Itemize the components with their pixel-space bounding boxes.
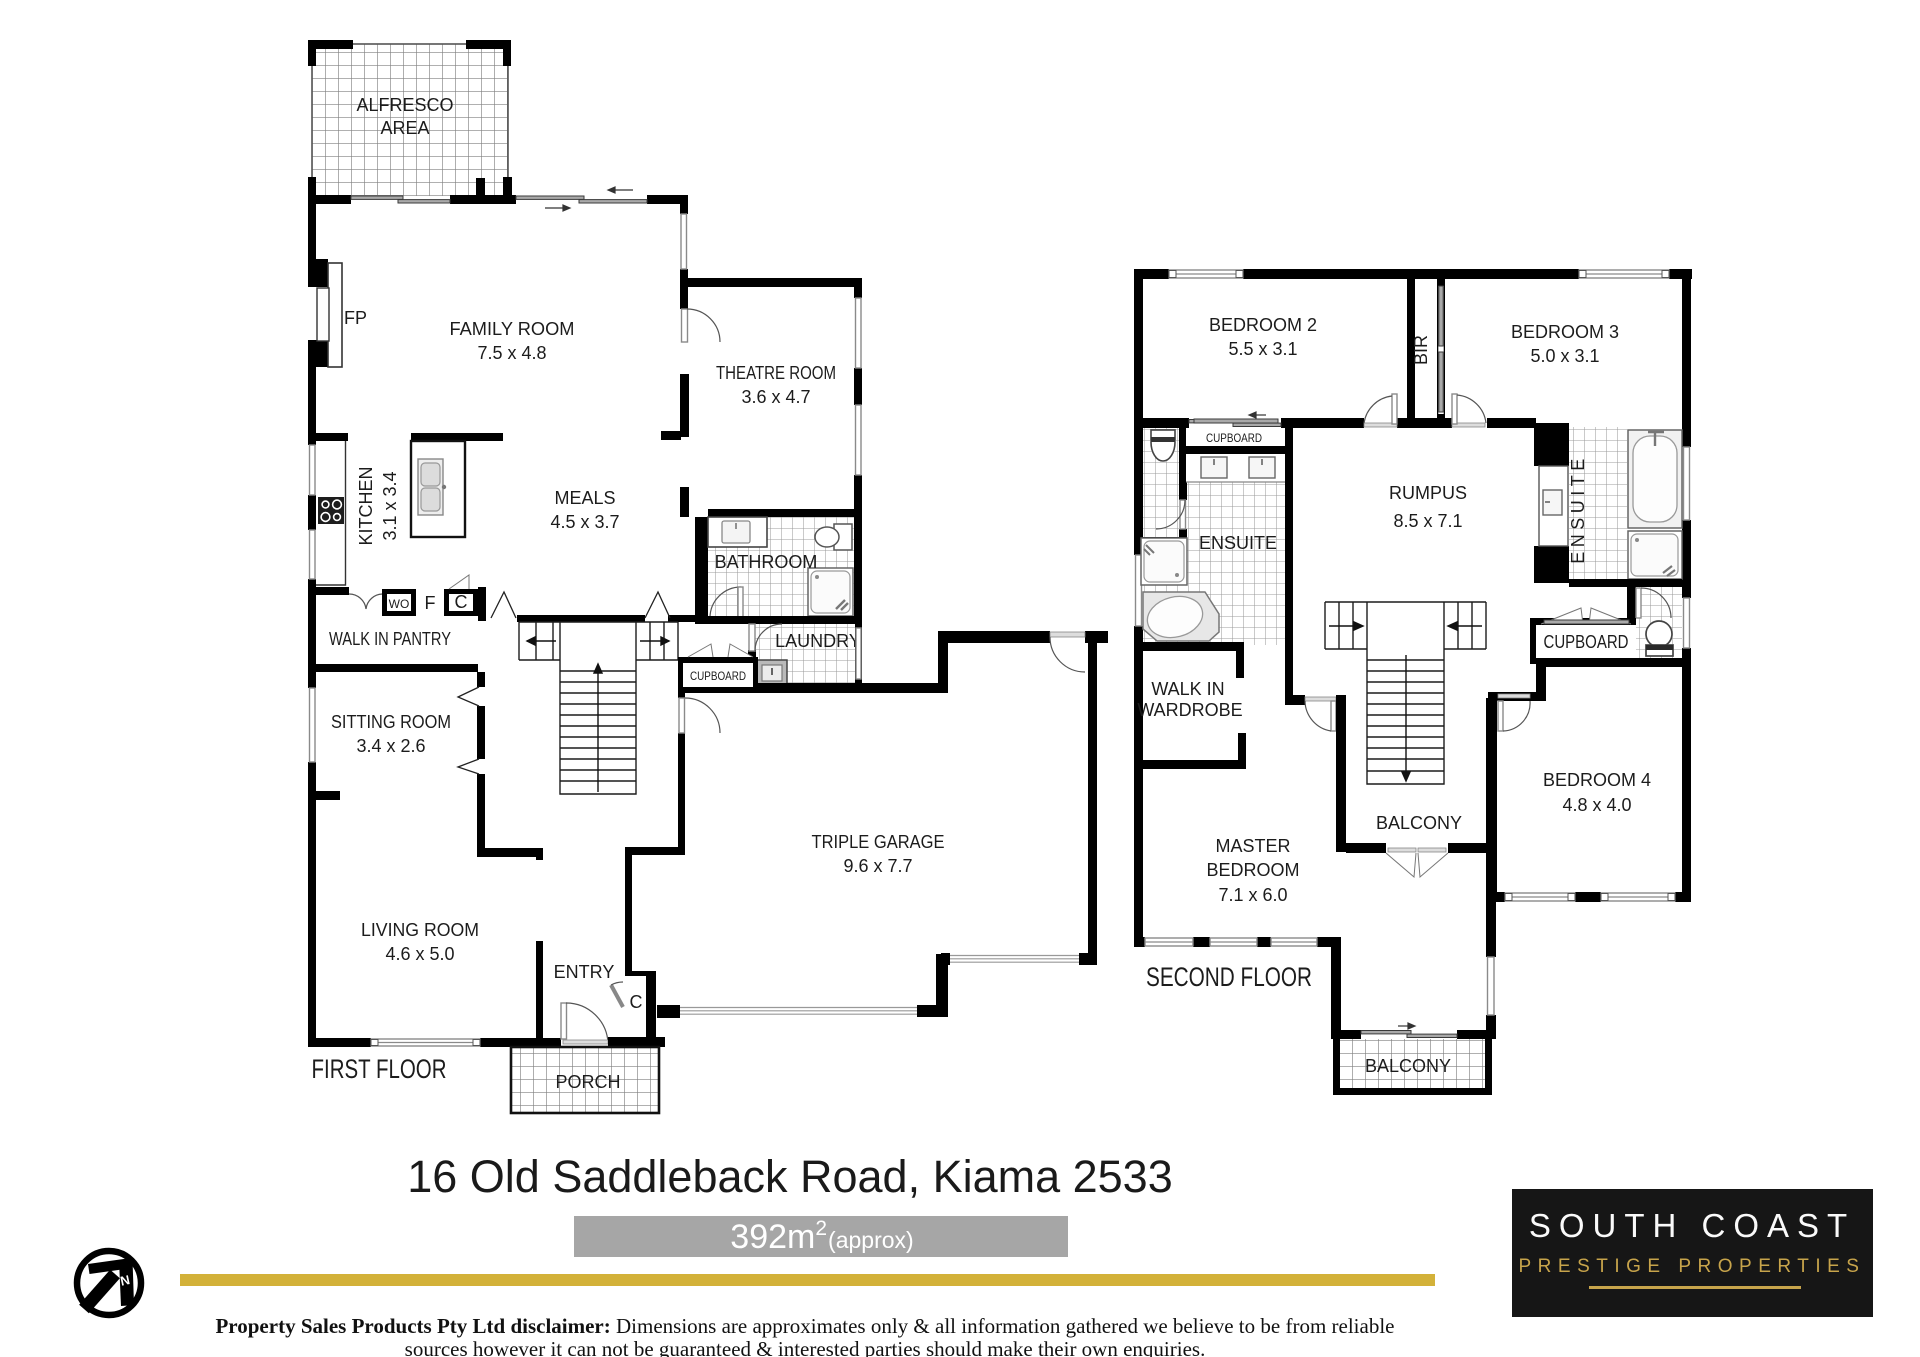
svg-text:BALCONY: BALCONY	[1376, 813, 1462, 833]
svg-text:BEDROOM: BEDROOM	[1206, 860, 1299, 880]
svg-text:7.5 x 4.8: 7.5 x 4.8	[477, 343, 546, 363]
svg-text:C: C	[455, 592, 468, 612]
svg-text:RUMPUS: RUMPUS	[1389, 483, 1467, 503]
svg-text:FP: FP	[344, 308, 367, 328]
svg-text:BEDROOM 2: BEDROOM 2	[1209, 315, 1317, 335]
svg-text:THEATRE ROOM: THEATRE ROOM	[716, 363, 836, 383]
svg-text:CUPBOARD: CUPBOARD	[1544, 632, 1629, 652]
svg-text:4.8 x 4.0: 4.8 x 4.0	[1562, 795, 1631, 815]
svg-text:SECOND FLOOR: SECOND FLOOR	[1146, 962, 1312, 992]
svg-text:WALK IN PANTRY: WALK IN PANTRY	[329, 629, 451, 649]
svg-text:WARDROBE: WARDROBE	[1137, 700, 1242, 720]
svg-text:AREA: AREA	[380, 118, 429, 138]
svg-text:3.4 x 2.6: 3.4 x 2.6	[356, 736, 425, 756]
svg-text:16 Old Saddleback Road, Kiama: 16 Old Saddleback Road, Kiama 2533	[407, 1151, 1173, 1202]
svg-text:BEDROOM 4: BEDROOM 4	[1543, 770, 1651, 790]
svg-text:BIR: BIR	[1411, 335, 1431, 365]
svg-text:KITCHEN: KITCHEN	[356, 466, 376, 545]
svg-text:8.5 x 7.1: 8.5 x 7.1	[1393, 511, 1462, 531]
svg-text:TRIPLE GARAGE: TRIPLE GARAGE	[812, 832, 945, 852]
svg-text:MASTER: MASTER	[1215, 836, 1290, 856]
svg-text:ENSUITE: ENSUITE	[1199, 533, 1277, 553]
svg-text:5.5 x 3.1: 5.5 x 3.1	[1228, 339, 1297, 359]
svg-text:9.6 x 7.7: 9.6 x 7.7	[843, 856, 912, 876]
svg-text:CUPBOARD: CUPBOARD	[1206, 431, 1262, 445]
svg-text:SOUTH COAST: SOUTH COAST	[1529, 1207, 1855, 1244]
svg-text:3.6 x 4.7: 3.6 x 4.7	[741, 387, 810, 407]
svg-text:MEALS: MEALS	[554, 488, 615, 508]
svg-text:BEDROOM 3: BEDROOM 3	[1511, 322, 1619, 342]
svg-text:LAUNDRY: LAUNDRY	[775, 631, 861, 651]
svg-text:ENSUITE: ENSUITE	[1568, 454, 1588, 564]
svg-text:F: F	[425, 593, 436, 613]
svg-text:C: C	[630, 992, 643, 1012]
svg-text:WALK IN: WALK IN	[1151, 679, 1224, 699]
svg-text:sources however it can not be: sources however it can not be guaranteed…	[405, 1337, 1206, 1357]
svg-text:3.1 x 3.4: 3.1 x 3.4	[380, 471, 400, 540]
svg-text:SITTING ROOM: SITTING ROOM	[331, 712, 451, 732]
svg-text:4.6 x 5.0: 4.6 x 5.0	[385, 944, 454, 964]
svg-text:PORCH: PORCH	[555, 1072, 620, 1092]
svg-text:BALCONY: BALCONY	[1365, 1056, 1451, 1076]
svg-text:Property Sales Products Pty Lt: Property Sales Products Pty Ltd disclaim…	[215, 1314, 1394, 1338]
svg-text:CUPBOARD: CUPBOARD	[690, 669, 746, 683]
svg-text:PRESTIGE PROPERTIES: PRESTIGE PROPERTIES	[1519, 1256, 1866, 1277]
svg-text:WO: WO	[389, 597, 410, 611]
svg-text:5.0 x 3.1: 5.0 x 3.1	[1530, 346, 1599, 366]
svg-text:7.1 x 6.0: 7.1 x 6.0	[1218, 885, 1287, 905]
svg-text:FAMILY ROOM: FAMILY ROOM	[450, 319, 575, 339]
svg-text:FIRST FLOOR: FIRST FLOOR	[312, 1054, 447, 1084]
svg-text:BATHROOM: BATHROOM	[715, 552, 818, 572]
svg-text:ENTRY: ENTRY	[554, 962, 615, 982]
svg-text:LIVING ROOM: LIVING ROOM	[361, 920, 479, 940]
svg-text:4.5 x 3.7: 4.5 x 3.7	[550, 512, 619, 532]
svg-text:ALFRESCO: ALFRESCO	[356, 95, 453, 115]
